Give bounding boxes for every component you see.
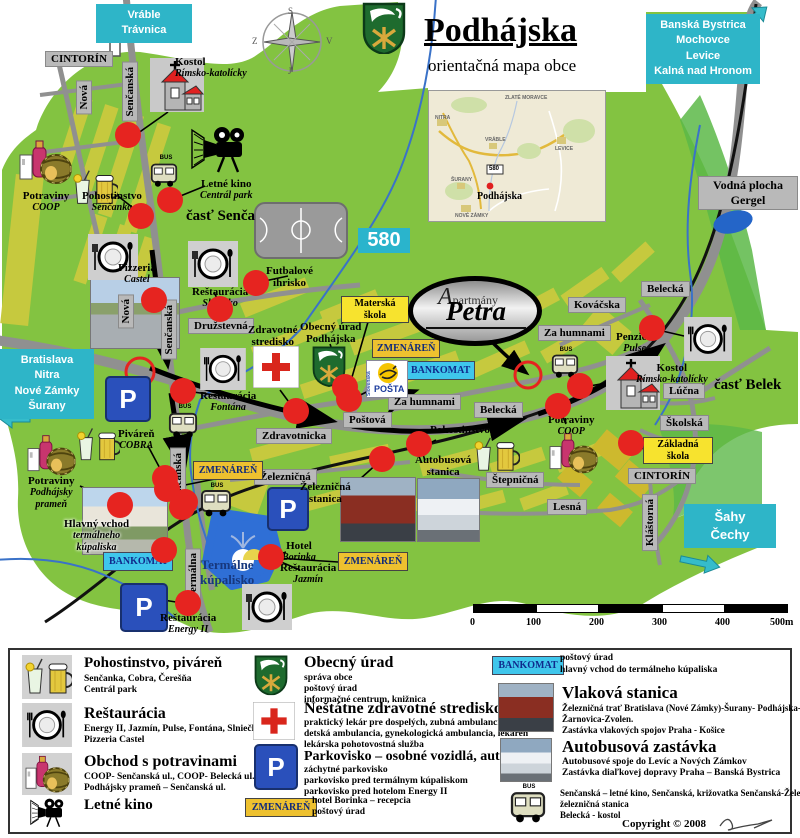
posta-logo: Slovenská POŠTA (366, 360, 408, 398)
parking-sign-center: P (105, 376, 151, 422)
label-potraviny-pramen: Potraviny Podhájsky prameň (28, 475, 74, 510)
legend-title-pohostinstvo: Pohostinstvo, piváreň (84, 655, 222, 672)
legend-line: Centrál park (84, 685, 137, 695)
street-belecka: Belecká (474, 402, 523, 418)
legend-line: Senčanka, Cobra, Čerešňa (84, 674, 192, 684)
legend-bus-photo (500, 738, 552, 782)
label-vodna-plocha: Vodná plochaGergel (698, 176, 798, 210)
label-rest-jazmin: ReštauráciaJazmín (280, 562, 336, 586)
scale-segment (725, 604, 788, 613)
poi-marker (618, 430, 644, 456)
street-skolska: Školská (660, 415, 709, 431)
label-kostol-belek: KostolRímsko-katolícky (636, 362, 708, 386)
compass-s: J (288, 66, 292, 76)
legend-line: Senčanská – letné kino, Senčanská, križo… (560, 788, 800, 798)
street-cintorin-belek: CINTORÍN (628, 468, 696, 484)
legend-line: praktický lekár pre dospelých, zubná amb… (304, 718, 505, 728)
legend-line: železničná stanica (560, 799, 629, 809)
inset-town: NOVÉ ZÁMKY (455, 213, 488, 219)
poi-marker (128, 203, 154, 229)
poi-marker (115, 122, 141, 148)
groceries-icon-pramen (26, 432, 76, 478)
sign-banska-bystrica: Banská BystricaMochovce LeviceKalná nad … (646, 14, 760, 84)
poi-marker (175, 590, 201, 616)
scale-segment (473, 604, 536, 613)
label-autobusova-stanica: Autobusovástanica (415, 454, 471, 479)
street-lesna: Lesná (547, 499, 587, 515)
street-sencanska: Senčanská (122, 62, 138, 122)
sign-sahy: ŠahyČechy (684, 504, 776, 548)
legend-line: Podhájsky prameň – Senčanská ul. (84, 783, 226, 793)
label-hlavny-vchod: Hlavný vchod termálneho kúpaliska (64, 518, 129, 553)
bus-station-photo (417, 478, 480, 542)
inset-town: ZLATÉ MORAVCE (505, 95, 547, 101)
restaurant-icon-kupalisko (240, 584, 294, 630)
poi-marker (369, 446, 395, 472)
bus-stop-icon (168, 410, 198, 440)
posta-label: POŠTA (374, 384, 404, 394)
posthorn-icon (375, 362, 401, 384)
street-stepnicna: Štepničná (486, 472, 544, 488)
legend-title-autobus: Autobusová zastávka (562, 737, 716, 757)
compass-w: Z (252, 36, 258, 46)
poi-marker (639, 315, 665, 341)
inset-place-label: Podhájska (477, 191, 522, 202)
sign-materska-skola: Materskáškola (341, 296, 409, 323)
street-klastorna: Kláštorná (642, 494, 658, 551)
label-hotel-borinka: HotelBorinka (282, 540, 316, 564)
sign-zmenaren-hotel: ZMENÁREŇ (338, 552, 408, 571)
area-belek: časť Belek (714, 377, 781, 394)
legend-line: COOP- Senčanská ul., COOP- Belecká ul. (84, 772, 254, 782)
label-termalne-kupalisko: Termálnekúpalisko (200, 558, 254, 587)
scale-tick: 300 (652, 617, 667, 628)
legend-line: Žarnovica-Zvolen. (562, 714, 633, 724)
street-kovacska: Kováčska (568, 297, 626, 313)
poi-marker (141, 287, 167, 313)
legend-zmenaren-sign: ZMENÁREŇ (245, 798, 317, 817)
label-zeleznicna-stanica: Železničnástanica (300, 481, 351, 506)
coat-of-arms-icon (362, 2, 406, 54)
legend-title-kino: Letné kino (84, 797, 153, 814)
inset-town: ŠURANY (451, 177, 472, 183)
street-belecka-2: Belecká (641, 281, 690, 297)
legend-title-zdravotne: Neštátne zdravotné stredisko (304, 700, 502, 718)
legend-line: poštový úrad (304, 684, 357, 694)
scale-tick: 500m (770, 617, 793, 628)
compass-e: V (326, 36, 333, 46)
poi-marker (243, 270, 269, 296)
train-station-photo (340, 477, 416, 542)
restaurant-icon-slniecko (188, 240, 238, 288)
label-letne-kino: Letné kinoCentrál park (200, 178, 253, 202)
poi-marker (406, 431, 432, 457)
street-cintorin: CINTORÍN (45, 51, 113, 67)
label-obecny-urad: Obecný úradPodhájska (300, 321, 361, 346)
poi-marker (170, 378, 196, 404)
label-pizzeria: PizzeriaCastel (118, 262, 156, 286)
sign-bankomat-center: BANKOMAT (405, 361, 475, 380)
legend-drinks-icon (22, 655, 72, 699)
posta-side-label: Slovenská (366, 362, 372, 396)
legend-line: Pizzeria Castel (84, 735, 144, 745)
sign-vrable: VrábleTrávnica (96, 4, 192, 43)
poi-marker (169, 494, 195, 520)
legend-line: poštový úrad (560, 653, 613, 663)
poi-marker (258, 544, 284, 570)
sign-bratislava: BratislavaNitra Nové ZámkyŠurany (0, 349, 94, 419)
legend-groceries-icon (22, 753, 72, 795)
poi-marker (107, 492, 133, 518)
legend-line: Zastávka diaľkovej dopravy Praha – Bansk… (562, 768, 780, 778)
legend-title-restauracia: Reštaurácia (84, 705, 166, 723)
legend-line: záchytné parkovisko (304, 765, 388, 775)
label-rest-fontana: ReštauráciaFontána (200, 390, 256, 414)
scale-tick: 400 (715, 617, 730, 628)
poi-marker (157, 187, 183, 213)
drinks-icon-cobra (74, 424, 120, 466)
sign-zakladna-skola: Základnáškola (643, 437, 713, 464)
street-nova: Nová (76, 80, 92, 114)
street-zdravotnicka: Zdravotnicka (256, 428, 332, 444)
scale-segment (536, 604, 599, 613)
page-subtitle: orientačná mapa obce (428, 56, 576, 76)
street-nova-2: Nová (118, 294, 134, 328)
bus-stop-icon (150, 161, 178, 189)
petra-name: Petra (426, 296, 526, 329)
scale-tick: 100 (526, 617, 541, 628)
legend-line: správa obce (304, 673, 352, 683)
scale-segment (599, 604, 662, 613)
groceries-icon (18, 136, 72, 188)
page-title: Podhájska (424, 12, 577, 50)
legend-title-obchod: Obchod s potravinami (84, 753, 237, 771)
inset-road-number: 580 (489, 166, 499, 172)
legend: Pohostinstvo, piváreň Senčanka, Cobra, Č… (8, 648, 792, 834)
legend-line: hlavný vchod do termálneho kúpaliska (560, 665, 717, 675)
poi-marker (283, 398, 309, 424)
legend-line: Železničná trať Bratislava (Nové Zámky)-… (562, 703, 800, 713)
label-futbalove-ihrisko: Futbalovéihrisko (266, 265, 313, 290)
scale-bar (473, 604, 788, 613)
legend-line: Belecká - kostol (560, 810, 621, 820)
label-pivaren-cobra: PiváreňCOBRA (118, 428, 154, 452)
signature (716, 812, 776, 832)
legend-title-vlak: Vlaková stanica (562, 683, 678, 703)
legend-train-photo (498, 683, 554, 732)
compass-rose-icon (260, 10, 324, 74)
legend-line: parkovisko pred termálnym kúpaliskom (304, 776, 468, 786)
scale-tick: 0 (470, 617, 475, 628)
poi-marker (545, 393, 571, 419)
restaurant-icon-belek (682, 317, 734, 361)
legend-line: hotel Borinka – recepcia (312, 796, 411, 806)
compass-n: S (288, 6, 293, 16)
legend-cinema-icon (22, 798, 72, 828)
inset-town: VRÁBLE (485, 137, 506, 143)
label-pohostinstvo-ceresna: Pohostinstvo (430, 424, 490, 436)
poi-marker (336, 386, 362, 412)
legend-coat-icon (254, 653, 288, 697)
legend-line: detská ambulancia, gynekologická ambulan… (304, 729, 528, 739)
drinks-icon-ceresna (470, 436, 520, 474)
legend-bankomat-sign: BANKOMAT (492, 656, 564, 675)
poi-marker (207, 296, 233, 322)
scale-tick: 200 (589, 617, 604, 628)
legend-bus-stop-label: BUS (509, 784, 549, 790)
orientation-map: ZLATÉ MORAVCE NITRA VRÁBLE LEVICE ŠURANY… (0, 0, 800, 838)
poi-marker (151, 537, 177, 563)
legend-bus-stop-icon (507, 791, 549, 823)
poi-marker (567, 373, 593, 399)
legend-line: Autobusové spoje do Levíc a Nových Zámko… (562, 757, 747, 767)
copyright: Copyright © 2008 (622, 818, 706, 830)
label-zdravotne-stredisko: Zdravotnéstredisko (248, 324, 298, 349)
legend-title-obecny: Obecný úrad (304, 654, 393, 672)
street-postova: Poštová (343, 412, 392, 428)
label-potraviny-coop: PotravinyCOOP (16, 190, 76, 214)
medical-cross-icon (253, 346, 299, 388)
legend-line: Zastávka vlakových spojov Praha - Košice (562, 725, 725, 735)
legend-cross-icon (250, 702, 298, 740)
legend-line: Energy II, Jazmín, Pulse, Fontána, Slnie… (84, 724, 262, 734)
road-number-badge: 580 (358, 228, 410, 253)
sign-zmenaren-station: ZMENÁREŇ (193, 461, 263, 480)
cinema-projector-icon (190, 126, 246, 174)
scale-segment (662, 604, 725, 613)
street-za-humnami-2: Za humnami (538, 325, 611, 341)
area-senca: časť Senča (186, 208, 255, 225)
inset-map: ZLATÉ MORAVCE NITRA VRÁBLE LEVICE ŠURANY… (428, 90, 606, 222)
legend-parking-icon: P (254, 744, 298, 790)
bus-stop-icon (200, 489, 232, 517)
legend-restaurant-icon (22, 703, 72, 747)
label-kostol: KostolRímsko-katolícky (175, 56, 247, 80)
inset-town: LEVICE (555, 146, 573, 152)
restaurant-icon-fontana (198, 348, 248, 390)
sign-zmenaren-center: ZMENÁREŇ (372, 339, 440, 358)
apartmany-petra-badge: Apartmány Petra (408, 276, 542, 346)
legend-line: poštový úrad (312, 807, 365, 817)
inset-town: NITRA (435, 115, 450, 121)
